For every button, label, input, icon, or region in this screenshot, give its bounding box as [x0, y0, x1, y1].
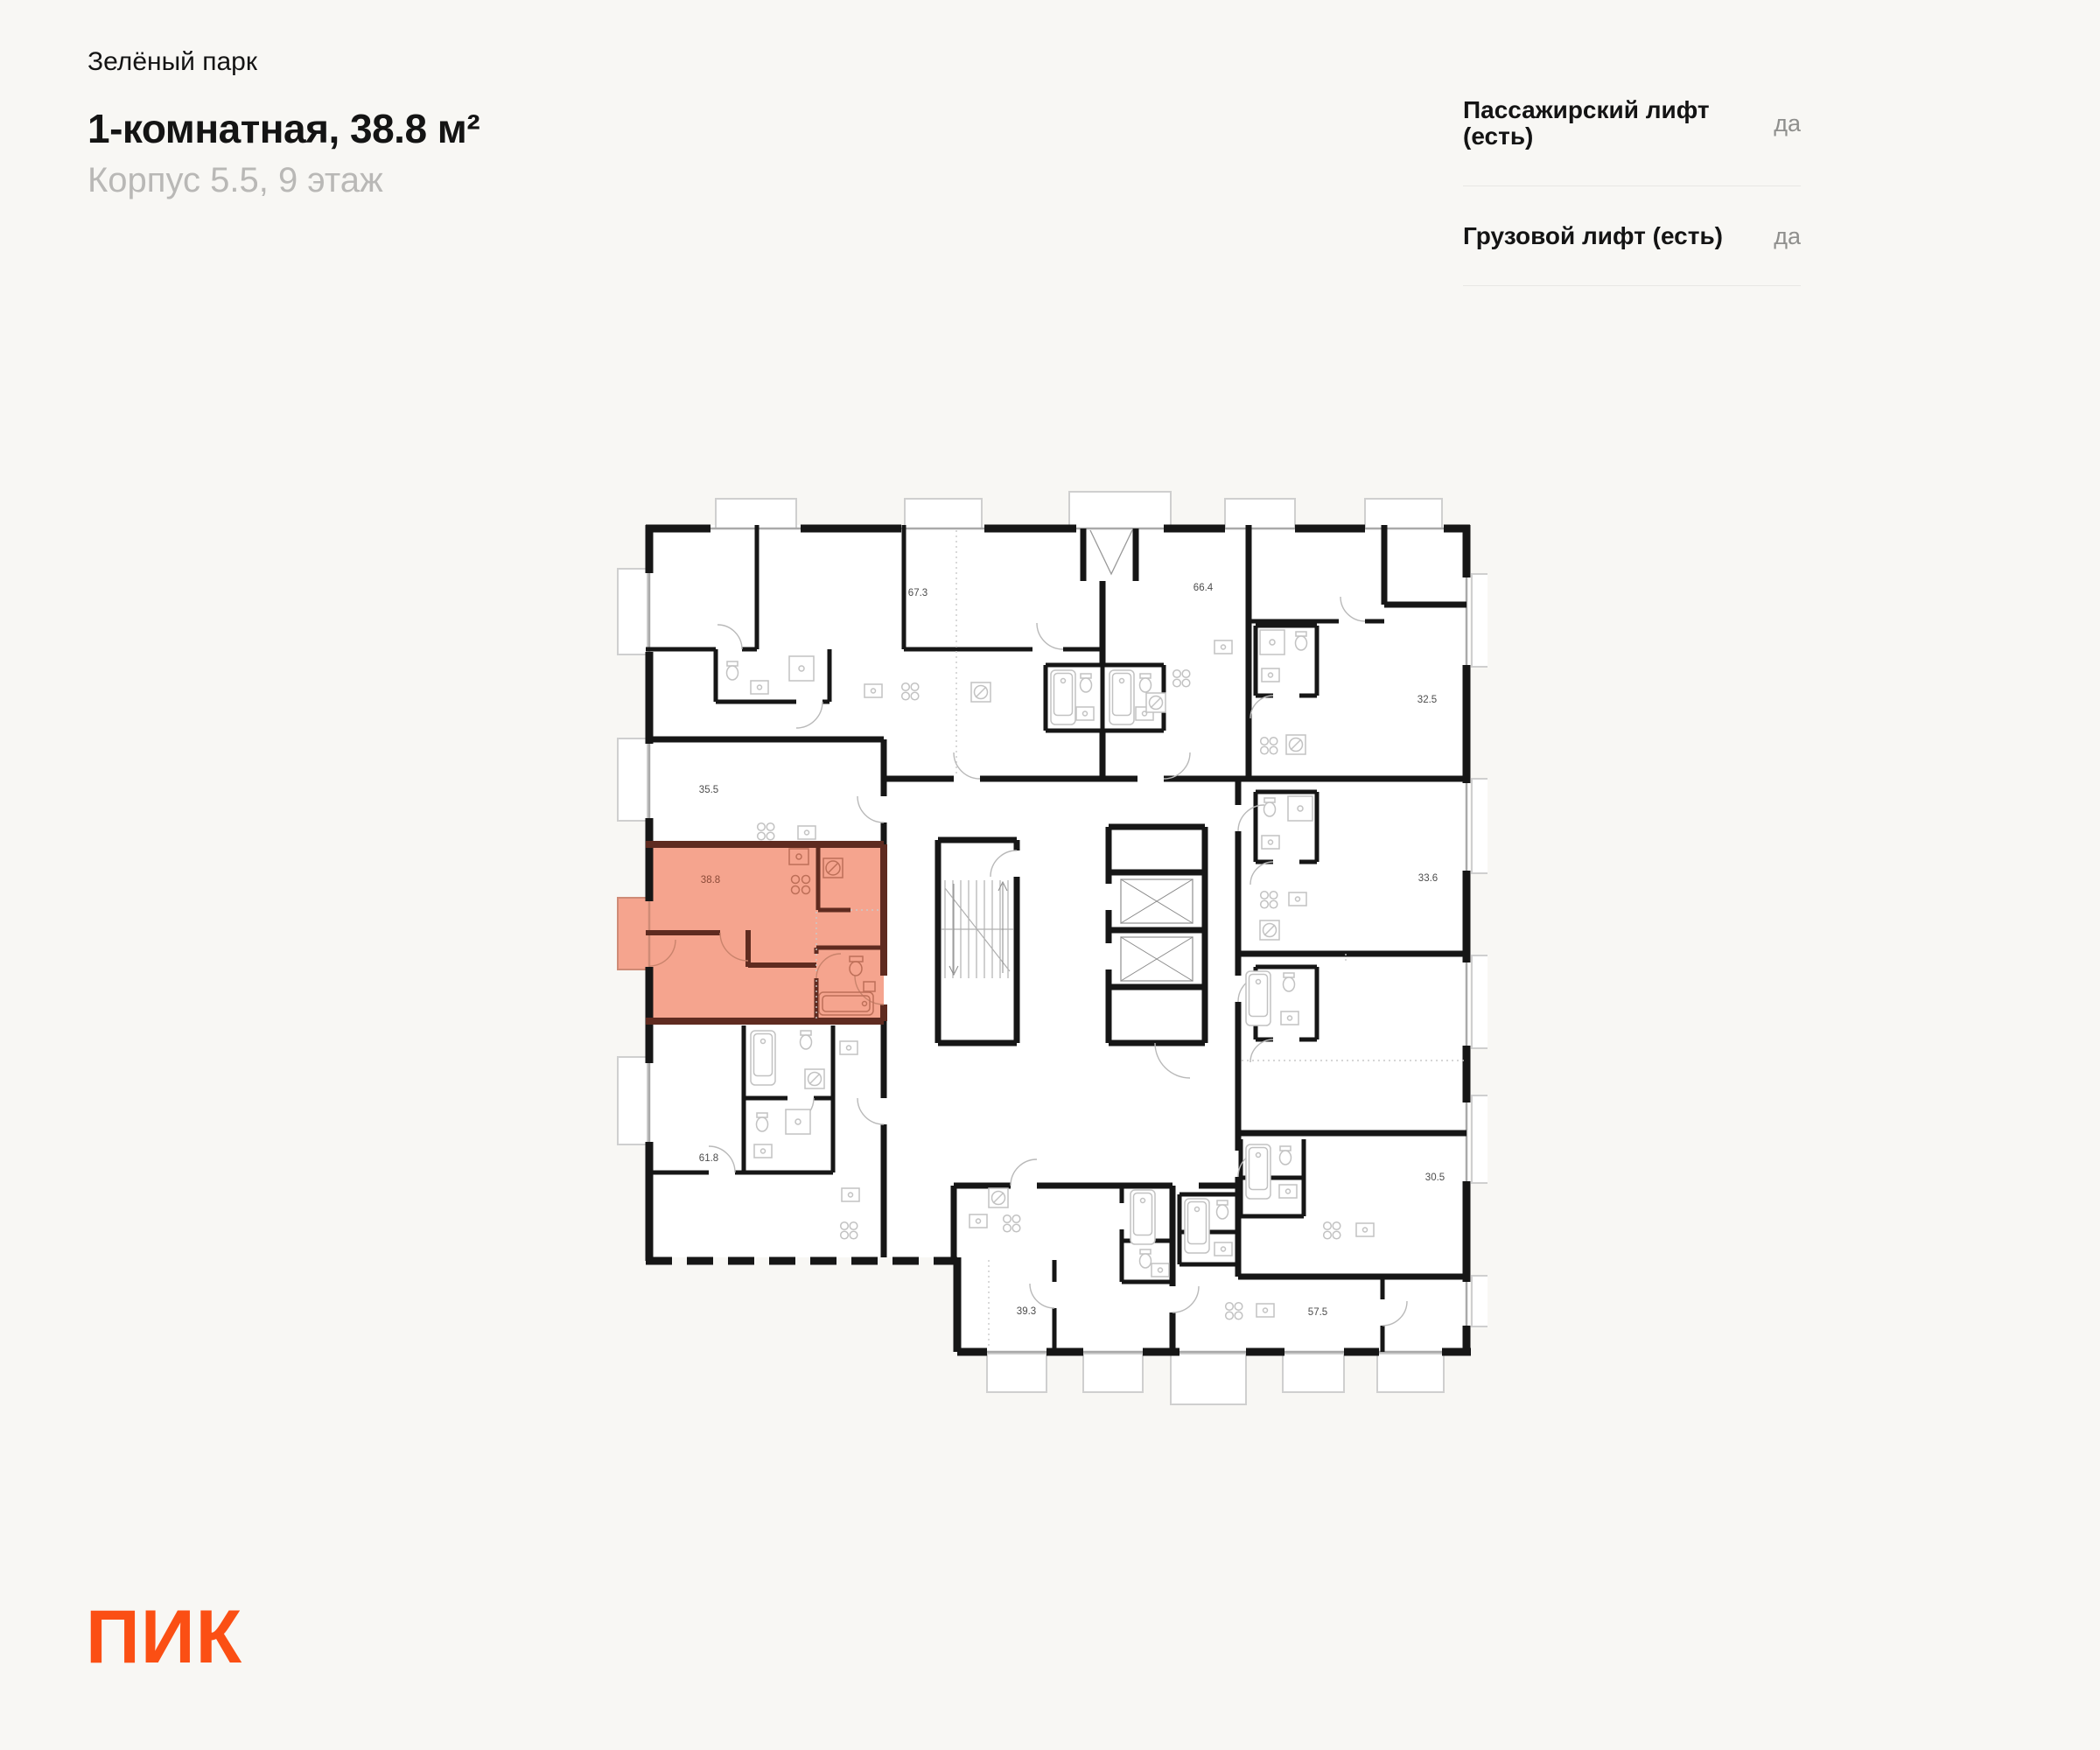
area-label: 32.5	[1417, 695, 1437, 705]
info-value: да	[1774, 223, 1801, 249]
listing-title: 1-комнатная, 38.8 м²	[87, 105, 479, 152]
floorplan-canvas[interactable]: 67.366.432.535.538.833.661.830.539.357.5	[612, 490, 1487, 1452]
info-panel: Пассажирский лифт (есть) да Грузовой лиф…	[1463, 60, 1801, 286]
area-label: 67.3	[908, 588, 927, 598]
area-label: 35.5	[699, 785, 718, 795]
listing-header: Зелёный парк 1-комнатная, 38.8 м² Корпус…	[87, 47, 479, 200]
info-row-cargo-lift: Грузовой лифт (есть) да	[1463, 186, 1801, 286]
area-label: 38.8	[701, 875, 720, 885]
area-label: 66.4	[1193, 583, 1214, 593]
area-label: 39.3	[1017, 1306, 1036, 1317]
info-label: Пассажирский лифт (есть)	[1463, 97, 1774, 150]
area-label: 57.5	[1308, 1307, 1327, 1318]
area-label: 30.5	[1425, 1172, 1445, 1183]
highlighted-balcony	[618, 898, 647, 969]
listing-subtitle: Корпус 5.5, 9 этаж	[87, 161, 479, 200]
info-value: да	[1774, 110, 1801, 136]
floorplan: 67.366.432.535.538.833.661.830.539.357.5	[612, 490, 1487, 1452]
pik-logo[interactable]: ПИК	[86, 1594, 242, 1681]
info-label: Грузовой лифт (есть)	[1463, 223, 1723, 249]
area-label: 33.6	[1418, 873, 1438, 884]
info-row-passenger-lift: Пассажирский лифт (есть) да	[1463, 60, 1801, 186]
area-label: 61.8	[699, 1153, 718, 1164]
project-name: Зелёный парк	[87, 47, 479, 77]
